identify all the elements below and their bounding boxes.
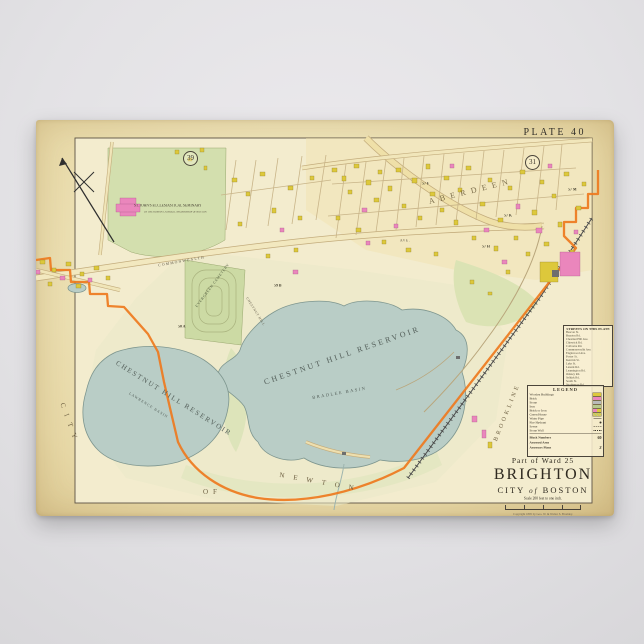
stone-wall-symbol-icon bbox=[594, 430, 602, 431]
block-number: 59 B bbox=[274, 284, 281, 288]
boston-word: BOSTON bbox=[543, 485, 589, 495]
fire-hydrant-symbol-icon bbox=[600, 422, 602, 424]
scale-bar bbox=[505, 504, 581, 510]
legend-footer-label: Assessed Area bbox=[530, 441, 550, 445]
adjacent-plate-ref-right: 31 bbox=[525, 155, 540, 170]
of-word: of bbox=[529, 487, 538, 495]
legend-item-label: Green House bbox=[530, 413, 547, 417]
seminary-label: ST. JOHN'S ECCLESIASTICAL SEMINARY bbox=[134, 204, 200, 208]
legend-item-label: Stone bbox=[530, 401, 537, 405]
scale-note: Scale 200 feet to one inch. bbox=[498, 497, 588, 501]
block-number: 57 F bbox=[422, 182, 429, 186]
block-number: 57 M bbox=[568, 188, 577, 192]
ave-label: AVE. bbox=[400, 239, 410, 243]
ward-label: Part of Ward 25 bbox=[468, 456, 618, 465]
publisher-imprint: Copyright 1895 by Geo. W. & Walter S. Br… bbox=[506, 513, 581, 516]
legend-item-label: Brick bbox=[530, 397, 537, 401]
block-number: 57 K bbox=[504, 214, 512, 218]
legend-item-label: Wooden Buildings bbox=[530, 393, 554, 397]
map-title-block: Part of Ward 25 BRIGHTON CITY of BOSTON … bbox=[468, 456, 618, 519]
adjacent-plate-ref-left: 39 bbox=[183, 151, 198, 166]
block-number: 57 H bbox=[482, 245, 490, 249]
legend-footer-value: 3 bbox=[599, 445, 601, 450]
street-index-list: Beacon St. Brayton Rd. Chestnut Hill Ave… bbox=[564, 331, 612, 387]
sewer-symbol-icon bbox=[594, 426, 602, 427]
legend-item-label: Stone Wall bbox=[530, 429, 544, 433]
legend-item-label: Sewer bbox=[530, 425, 538, 429]
seminary-sublabel: OF THE ROMAN CATHOLIC ARCHBISHOP OF BOST… bbox=[144, 211, 190, 214]
legend-panel: LEGEND Wooden Buildings Brick Stone Iron… bbox=[527, 385, 604, 457]
map-poster: PLATE 40 39 31 ST. JOHN'S ECCLESIASTICAL… bbox=[36, 120, 614, 516]
block-number: 50 A bbox=[178, 325, 185, 329]
water-pipe-symbol-icon bbox=[594, 418, 602, 419]
legend-item-label: Brick or Iron bbox=[530, 409, 547, 413]
map-subtitle: CITY of BOSTON bbox=[468, 485, 618, 495]
plate-number-label: PLATE 40 bbox=[436, 128, 586, 138]
city-of-newton-of-label: OF bbox=[203, 489, 222, 496]
greenhouse-swatch-icon bbox=[593, 413, 602, 417]
city-word: CITY bbox=[497, 485, 525, 495]
page-background: { "poster": { "plate": "PLATE 40", "refs… bbox=[0, 0, 644, 644]
legend-item-label: Fire Hydrant bbox=[530, 421, 547, 425]
legend-footer-label: Block Numbers bbox=[530, 436, 552, 440]
legend-item-label: Water Pipe bbox=[530, 417, 544, 421]
evergreen-cemetery-area bbox=[185, 260, 245, 345]
legend-footer-value: 60 bbox=[598, 435, 602, 440]
car-house-brick bbox=[560, 252, 580, 276]
street-index-panel: STREETS ON THIS PLATE Beacon St. Brayton… bbox=[563, 325, 613, 387]
legend-item-label: Iron bbox=[530, 405, 535, 409]
legend-footer-label: Assessors Plans bbox=[530, 446, 552, 450]
map-title: BRIGHTON bbox=[468, 466, 618, 484]
